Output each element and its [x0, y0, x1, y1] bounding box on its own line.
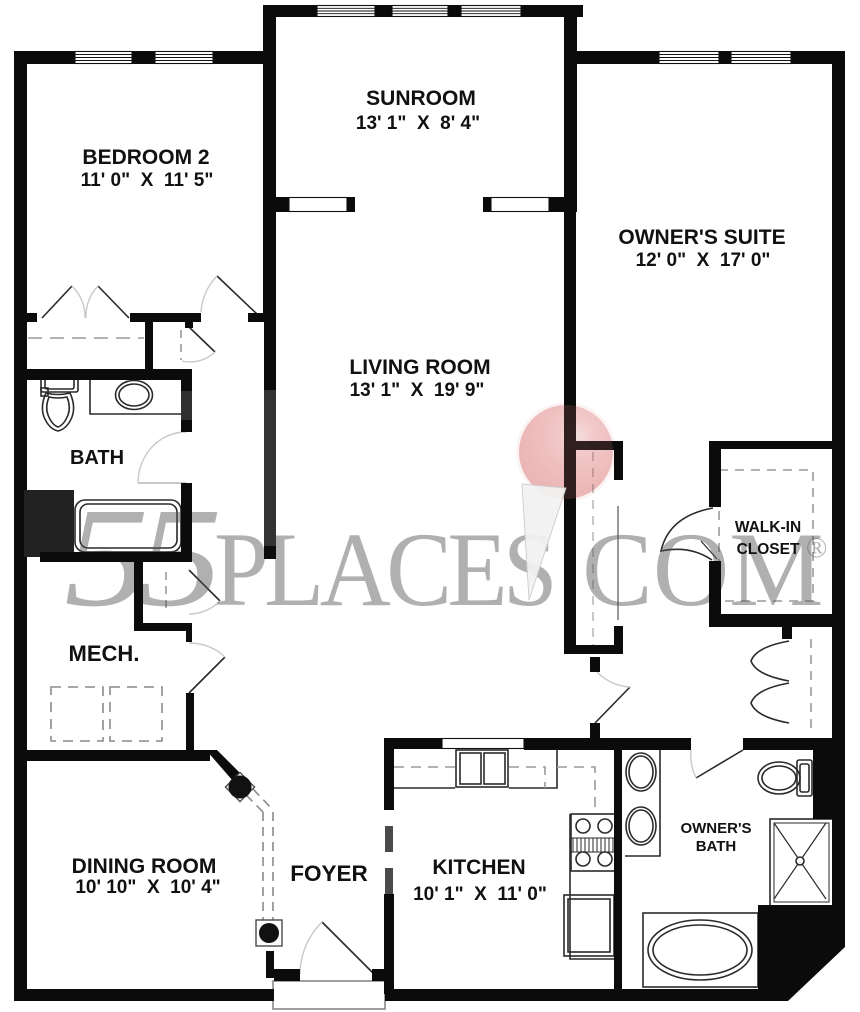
svg-text:OWNER'S: OWNER'S: [680, 820, 751, 837]
svg-text:MECH.: MECH.: [69, 641, 140, 666]
svg-text:12' 0" X 17' 0": 12' 0" X 17' 0": [636, 250, 771, 271]
svg-text:BATH: BATH: [70, 447, 124, 469]
svg-text:DINING ROOM: DINING ROOM: [72, 855, 217, 878]
svg-text:KITCHEN: KITCHEN: [432, 856, 525, 879]
svg-text:FOYER: FOYER: [290, 861, 368, 886]
svg-text:10' 1" X 11' 0": 10' 1" X 11' 0": [413, 884, 547, 905]
svg-text:LIVING ROOM: LIVING ROOM: [349, 356, 490, 379]
svg-text:SUNROOM: SUNROOM: [366, 87, 476, 110]
svg-text:®: ®: [806, 533, 827, 564]
svg-text:BATH: BATH: [696, 838, 737, 855]
svg-text:BEDROOM 2: BEDROOM 2: [82, 146, 209, 169]
svg-text:10' 10" X 10' 4": 10' 10" X 10' 4": [75, 877, 220, 898]
svg-text:13' 1" X 8' 4": 13' 1" X 8' 4": [356, 113, 480, 134]
svg-text:OWNER'S SUITE: OWNER'S SUITE: [618, 226, 785, 249]
svg-text:CLOSET: CLOSET: [737, 541, 800, 558]
svg-text:11' 0" X 11' 5": 11' 0" X 11' 5": [81, 170, 214, 191]
svg-text:13' 1" X 19' 9": 13' 1" X 19' 9": [350, 380, 485, 401]
svg-text:WALK-IN: WALK-IN: [735, 519, 801, 536]
